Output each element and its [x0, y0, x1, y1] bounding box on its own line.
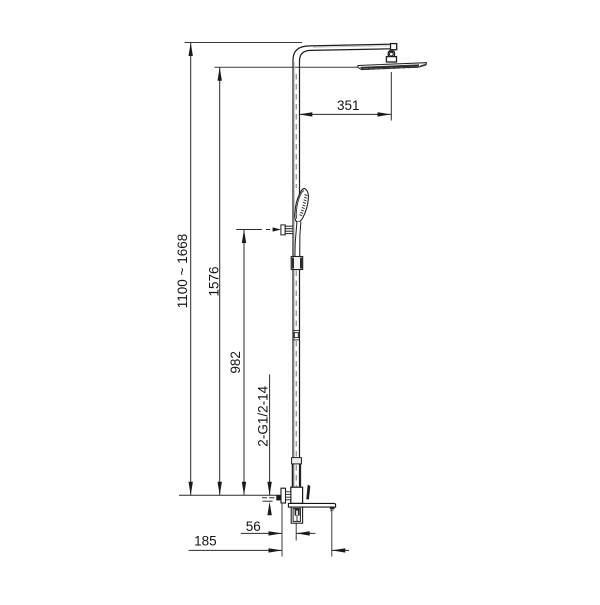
- svg-text:982: 982: [228, 351, 243, 374]
- svg-text:56: 56: [246, 519, 261, 534]
- svg-text:185: 185: [194, 534, 217, 549]
- svg-text:351: 351: [337, 98, 360, 113]
- svg-text:1100 ~ 1668: 1100 ~ 1668: [175, 234, 190, 308]
- svg-text:2-G1/2-14: 2-G1/2-14: [255, 385, 270, 446]
- svg-text:1576: 1576: [206, 266, 221, 296]
